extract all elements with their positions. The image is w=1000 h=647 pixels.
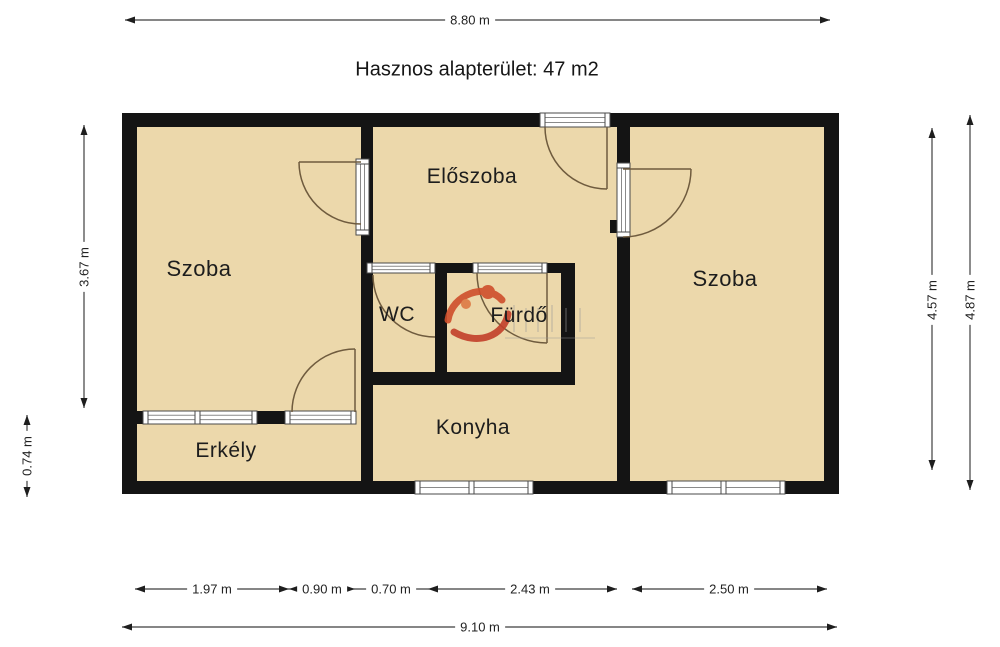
room-label-furdo: Fürdő: [490, 304, 547, 328]
wall-bath-right: [561, 263, 575, 385]
wall-balcony-stub: [137, 411, 143, 424]
dim-label-seg-3: 0.70 m: [366, 582, 416, 597]
room-label-konyha: Konyha: [436, 416, 510, 440]
dim-label-bottom-total: 9.10 m: [455, 620, 505, 635]
dim-label-balcony: 0.74 m: [20, 431, 35, 481]
floor-plan-page: Hasznos alapterület: 47 m2 8.80 m 3.67 m…: [0, 0, 1000, 647]
room-label-szoba-right: Szoba: [693, 266, 758, 292]
room-label-eloszoba: Előszoba: [427, 165, 517, 189]
wall-kitchen-top: [361, 372, 575, 385]
wall-left: [122, 113, 137, 494]
wall-wc-bath-divider: [435, 263, 447, 385]
kitchen-window: [415, 481, 533, 494]
wall-right: [824, 113, 839, 494]
dim-label-left-room: 3.67 m: [77, 242, 92, 292]
wall-bath-top-left: [447, 263, 473, 273]
balcony-door-panel: [285, 411, 356, 424]
room-right-door-panel: [617, 163, 630, 237]
wc-door-panel: [367, 263, 435, 273]
room-label-wc: WC: [379, 303, 415, 327]
page-title: Hasznos alapterület: 47 m2: [355, 59, 598, 82]
dim-label-right-inner: 4.57 m: [925, 275, 940, 325]
dim-label-seg-4: 2.43 m: [505, 582, 555, 597]
wall-doorstop-stub: [610, 220, 617, 233]
entry-door-panel: [540, 113, 610, 127]
room-label-erkely: Erkély: [195, 439, 256, 463]
wall-top: [122, 113, 839, 127]
dim-label-seg-2: 0.90 m: [297, 582, 347, 597]
room-label-szoba-left: Szoba: [167, 256, 232, 282]
dim-label-top-width: 8.80 m: [445, 13, 495, 28]
wall-balcony-pier: [257, 411, 285, 424]
dim-label-right-outer: 4.87 m: [963, 275, 978, 325]
dim-label-seg-1: 1.97 m: [187, 582, 237, 597]
balcony-window: [143, 411, 257, 424]
dim-label-seg-5: 2.50 m: [704, 582, 754, 597]
room-right-window: [667, 481, 785, 494]
bath-door-panel: [473, 263, 547, 273]
